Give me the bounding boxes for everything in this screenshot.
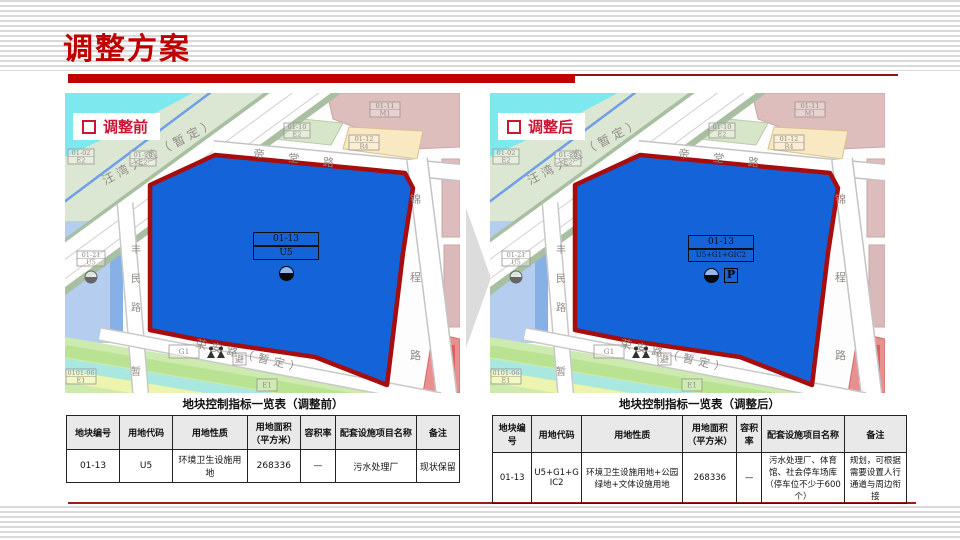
parcel-use-box: U5+G1+GIC2 [688,249,754,262]
panel-before: 调整前 01-13 U5 [65,93,460,393]
col-header: 用地性质 [582,416,683,453]
slide: { "slide": { "title": "调整方案" }, "panels"… [0,0,960,540]
parcel-use-box: U5 [253,246,319,260]
col-header: 地块编号 [67,416,120,450]
page-title: 调整方案 [63,24,191,68]
parcel-label-before: 01-13 U5 [253,232,319,281]
col-header: 容积率 [737,416,762,453]
table-header-row: 地块编号 用地代码 用地性质 用地面积（平方米） 容积率 配套设施项目名称 备注 [493,416,907,453]
title-thin-line [575,74,898,76]
cell: 规划，可根据需要设置人行通道与周边衔接 [844,453,906,504]
parcel-label-after: 01-13 U5+G1+GIC2 P [688,235,754,283]
cell: 01-13 [493,453,532,504]
parcel-code-box: 01-13 [688,235,754,249]
col-header: 容积率 [300,416,335,450]
panel-tag-label: 调整前 [103,116,148,137]
cell: 污水处理厂 [336,450,417,483]
parcel-code-box: 01-13 [253,232,319,246]
panel-tag-before: 调整前 [73,113,160,140]
col-header: 备注 [844,416,906,453]
parking-icon: P [724,268,738,283]
cell: U5+G1+GIC2 [532,453,582,504]
cell: 01-13 [67,450,120,483]
cell: — [300,450,335,483]
cell: 污水处理厂、体育馆、社会停车场库（停车位不少于600个） [762,453,845,504]
table-block-after: 地块控制指标一览表（调整后） 地块编号 用地代码 用地性质 用地面积（平方米） … [492,396,907,504]
cell: 现状保留 [416,450,459,483]
control-table-after: 地块编号 用地代码 用地性质 用地面积（平方米） 容积率 配套设施项目名称 备注… [492,415,907,504]
cell: 268336 [683,453,737,504]
panel-tag-label: 调整后 [528,116,573,137]
sewage-plant-icon [704,268,719,283]
bottom-stripe-band [0,506,960,540]
parcel-icons [253,266,319,281]
col-header: 用地代码 [120,416,173,450]
col-header: 用地性质 [173,416,248,450]
cell: 268336 [247,450,300,483]
bullet-square-icon [82,120,96,134]
table-title-before: 地块控制指标一览表（调整前） [66,396,460,412]
parcel-icons: P [688,268,754,283]
col-header: 备注 [416,416,459,450]
control-table-before: 地块编号 用地代码 用地性质 用地面积（平方米） 容积率 配套设施项目名称 备注… [66,415,460,483]
table-row: 01-13 U5+G1+GIC2 环境卫生设施用地+公园绿地+文体设施用地 26… [493,453,907,504]
bullet-square-icon [507,120,521,134]
col-header: 配套设施项目名称 [336,416,417,450]
cell: — [737,453,762,504]
cell: 环境卫生设施用地+公园绿地+文体设施用地 [582,453,683,504]
sewage-plant-icon [279,266,294,281]
col-header: 用地面积（平方米） [683,416,737,453]
panel-after: 调整后 01-13 U5+G1+GIC2 P [490,93,885,393]
table-title-after: 地块控制指标一览表（调整后） [492,396,907,412]
panel-tag-after: 调整后 [498,113,585,140]
table-block-before: 地块控制指标一览表（调整前） 地块编号 用地代码 用地性质 用地面积（平方米） … [66,396,460,483]
title-accent-bar [68,74,575,83]
cell: 环境卫生设施用地 [173,450,248,483]
table-header-row: 地块编号 用地代码 用地性质 用地面积（平方米） 容积率 配套设施项目名称 备注 [67,416,460,450]
col-header: 配套设施项目名称 [762,416,845,453]
col-header: 用地面积（平方米） [247,416,300,450]
cell: U5 [120,450,173,483]
transition-arrow-icon [466,208,491,348]
col-header: 地块编号 [493,416,532,453]
col-header: 用地代码 [532,416,582,453]
table-row: 01-13 U5 环境卫生设施用地 268336 — 污水处理厂 现状保留 [67,450,460,483]
